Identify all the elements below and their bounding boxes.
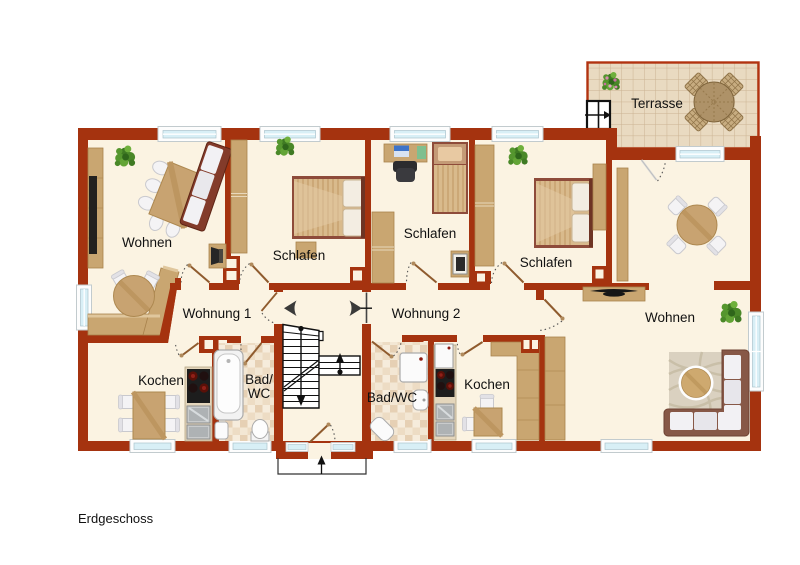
svg-text:Schlafen: Schlafen [404,226,457,241]
svg-text:Terrasse: Terrasse [631,96,683,111]
svg-text:Wohnung 2: Wohnung 2 [392,306,461,321]
svg-text:Schlafen: Schlafen [520,255,573,270]
svg-text:Bad/: Bad/ [245,372,273,387]
svg-text:Wohnung 1: Wohnung 1 [183,306,252,321]
svg-text:Erdgeschoss: Erdgeschoss [78,511,154,526]
svg-text:Wohnen: Wohnen [645,310,695,325]
svg-text:Bad/WC: Bad/WC [367,390,418,405]
svg-text:Wohnen: Wohnen [122,235,172,250]
svg-text:Schlafen: Schlafen [273,248,326,263]
svg-text:Kochen: Kochen [464,377,510,392]
svg-text:WC: WC [248,386,271,401]
svg-text:Kochen: Kochen [138,373,184,388]
